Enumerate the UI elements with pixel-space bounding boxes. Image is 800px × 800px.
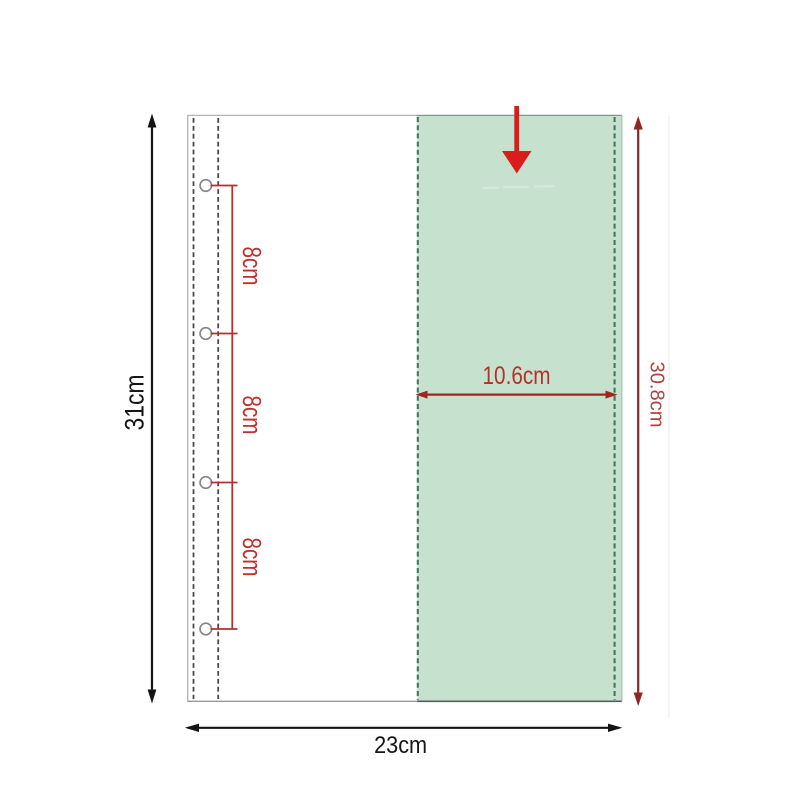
svg-text:8cm: 8cm [237, 396, 265, 435]
svg-text:30.8cm: 30.8cm [646, 362, 668, 428]
svg-text:8cm: 8cm [237, 538, 265, 577]
svg-text:31cm: 31cm [120, 375, 150, 431]
svg-text:23cm: 23cm [374, 732, 427, 759]
svg-text:10.6cm: 10.6cm [483, 362, 551, 390]
svg-text:8cm: 8cm [237, 247, 265, 286]
